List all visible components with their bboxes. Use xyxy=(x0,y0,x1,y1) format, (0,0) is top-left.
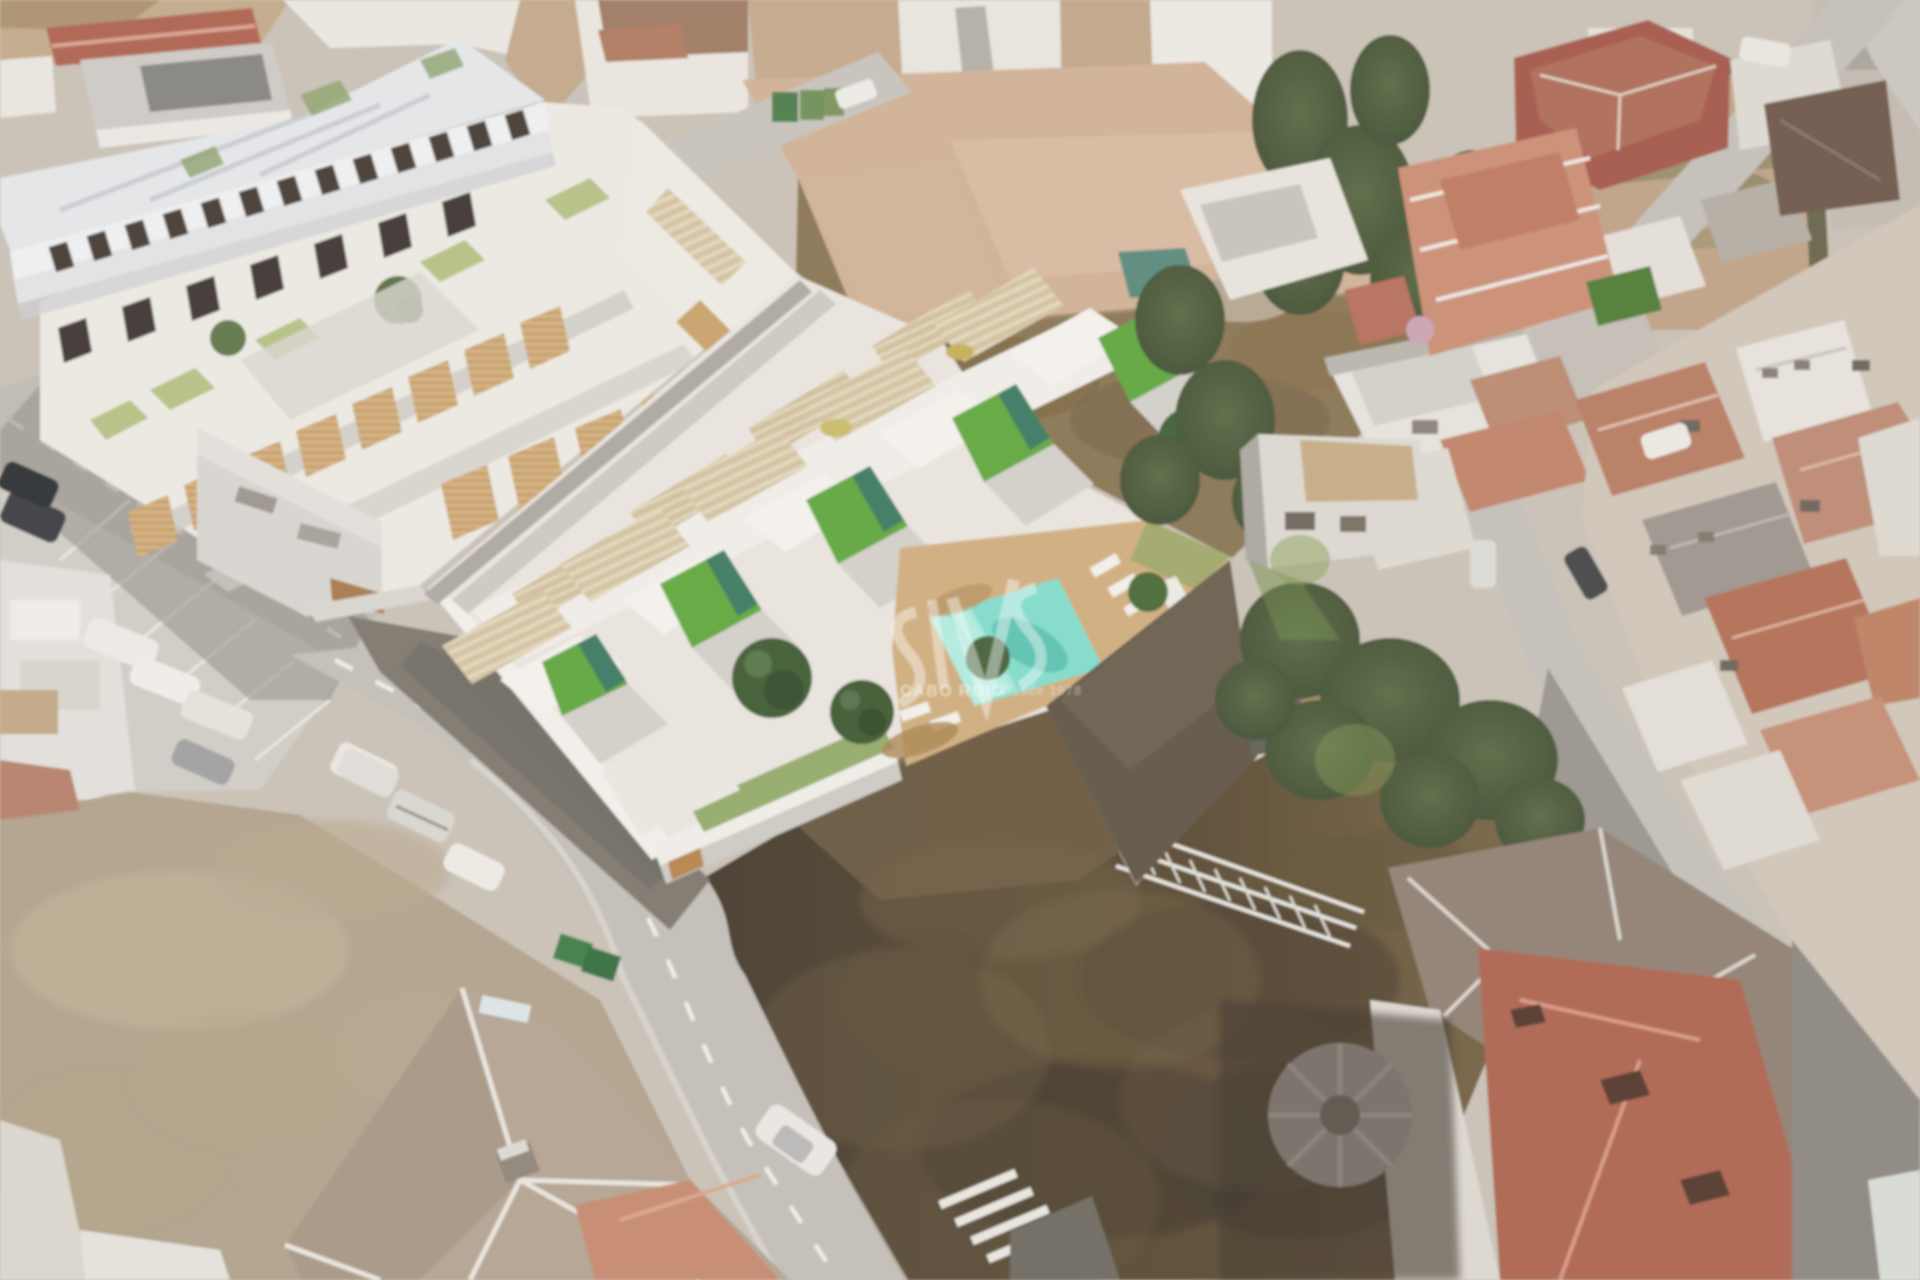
svg-text:Desde 1978: Desde 1978 xyxy=(1002,683,1082,698)
svg-text:CABO ROIG: CABO ROIG xyxy=(900,683,1006,700)
